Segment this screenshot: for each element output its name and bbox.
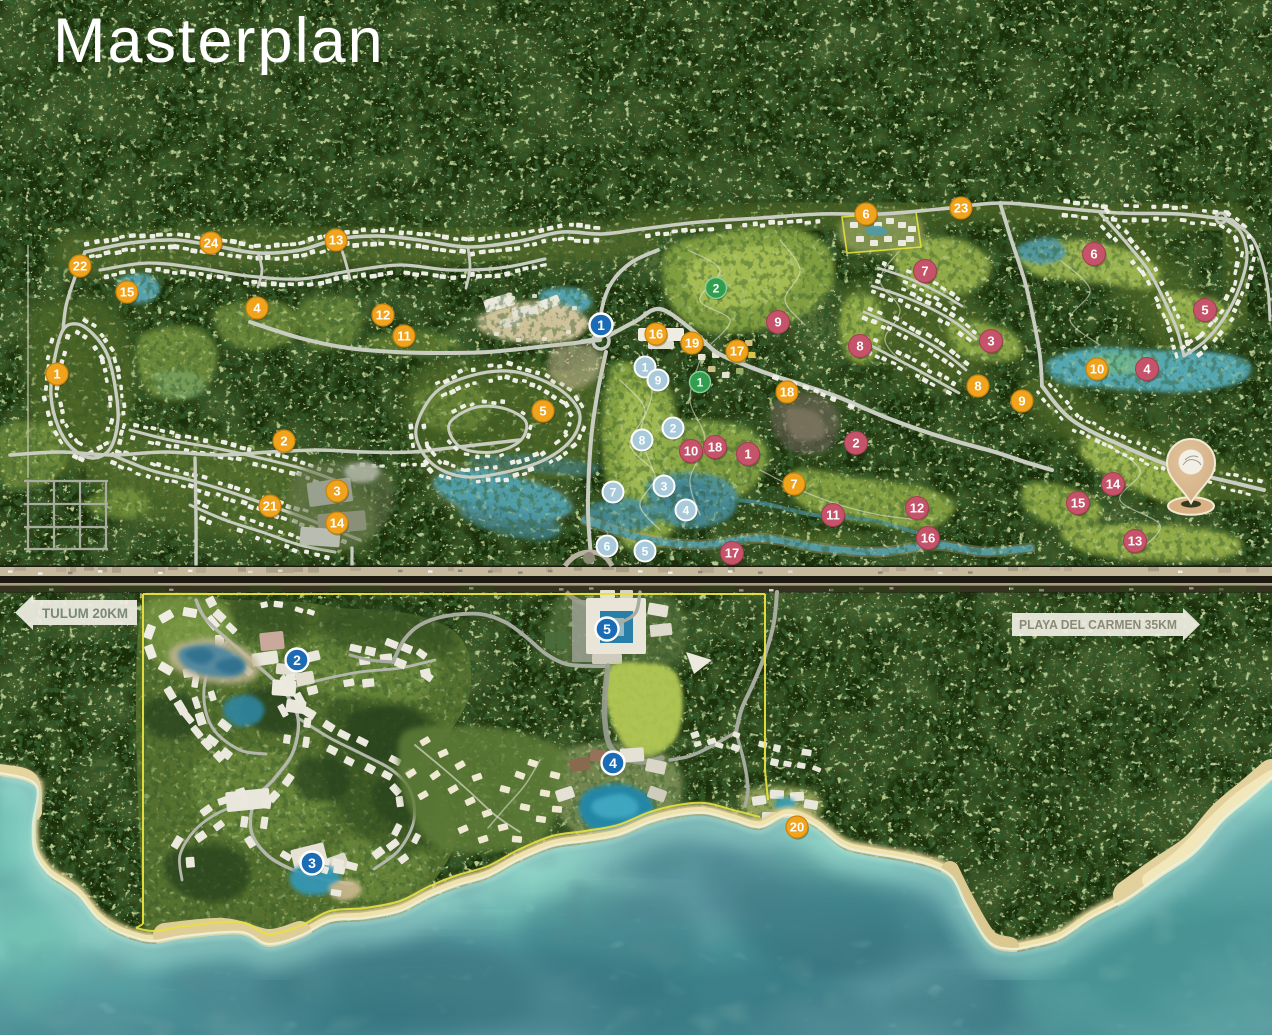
svg-text:PLAYA DEL CARMEN 35KM: PLAYA DEL CARMEN 35KM	[1019, 618, 1177, 632]
svg-text:21: 21	[263, 499, 277, 514]
svg-text:7: 7	[610, 485, 617, 499]
svg-text:18: 18	[780, 385, 794, 400]
svg-text:10: 10	[1090, 362, 1104, 377]
svg-text:5: 5	[603, 621, 611, 637]
svg-text:22: 22	[73, 259, 87, 274]
svg-text:3: 3	[333, 484, 340, 499]
svg-text:9: 9	[774, 315, 781, 330]
svg-text:4: 4	[683, 503, 690, 517]
svg-text:6: 6	[604, 539, 611, 553]
svg-text:7: 7	[790, 477, 797, 492]
svg-text:2: 2	[670, 421, 677, 435]
svg-text:6: 6	[1090, 247, 1097, 262]
svg-text:9: 9	[1018, 394, 1025, 409]
svg-text:1: 1	[597, 317, 605, 333]
svg-text:5: 5	[539, 404, 546, 419]
svg-text:14: 14	[330, 516, 345, 531]
svg-text:2: 2	[280, 434, 287, 449]
svg-text:8: 8	[639, 433, 646, 447]
svg-text:8: 8	[974, 379, 981, 394]
svg-text:11: 11	[826, 508, 840, 523]
svg-text:18: 18	[708, 440, 722, 455]
svg-text:5: 5	[642, 544, 649, 558]
svg-text:16: 16	[649, 327, 663, 342]
svg-text:19: 19	[685, 336, 699, 351]
svg-text:6: 6	[862, 207, 869, 222]
svg-text:16: 16	[921, 531, 935, 546]
svg-text:9: 9	[655, 373, 662, 387]
svg-text:3: 3	[308, 855, 316, 871]
svg-text:1: 1	[642, 360, 649, 374]
svg-text:2: 2	[852, 436, 859, 451]
svg-text:12: 12	[910, 501, 924, 516]
svg-text:4: 4	[1143, 362, 1151, 377]
svg-text:17: 17	[725, 546, 739, 561]
svg-text:11: 11	[397, 329, 411, 344]
svg-text:3: 3	[661, 479, 668, 493]
svg-text:15: 15	[120, 285, 134, 300]
svg-text:7: 7	[921, 264, 928, 279]
svg-text:13: 13	[329, 233, 343, 248]
svg-text:5: 5	[1201, 303, 1208, 318]
svg-text:1: 1	[697, 375, 704, 389]
svg-text:13: 13	[1128, 534, 1142, 549]
svg-text:2: 2	[293, 652, 301, 668]
svg-text:2: 2	[713, 281, 720, 295]
svg-text:1: 1	[744, 447, 751, 462]
svg-text:15: 15	[1071, 496, 1085, 511]
svg-text:1: 1	[53, 367, 60, 382]
svg-text:8: 8	[856, 339, 863, 354]
svg-text:24: 24	[204, 236, 219, 251]
svg-text:Masterplan: Masterplan	[53, 6, 385, 76]
svg-text:TULUM 20KM: TULUM 20KM	[42, 606, 128, 621]
svg-text:3: 3	[987, 334, 994, 349]
svg-text:23: 23	[954, 201, 968, 216]
svg-text:20: 20	[790, 820, 804, 835]
svg-text:14: 14	[1106, 477, 1121, 492]
svg-text:4: 4	[609, 755, 617, 771]
svg-text:12: 12	[376, 308, 390, 323]
svg-text:4: 4	[253, 301, 261, 316]
svg-text:17: 17	[730, 344, 744, 359]
svg-text:10: 10	[684, 444, 698, 459]
